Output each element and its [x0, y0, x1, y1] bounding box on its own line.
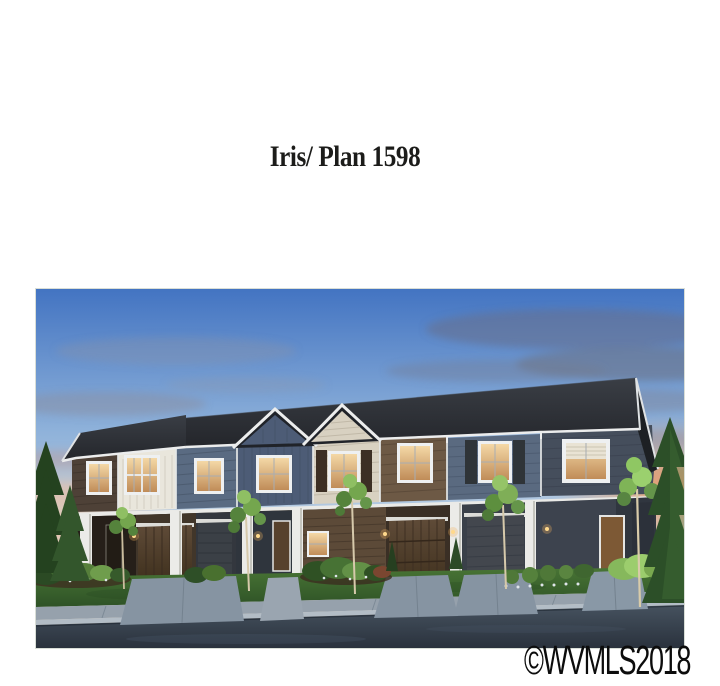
listing-photo	[36, 289, 684, 648]
window-brown-unit	[397, 443, 433, 483]
plan-title: Iris/ Plan 1598	[43, 140, 648, 175]
door-center	[273, 521, 290, 571]
townhome-rendering	[36, 289, 684, 648]
lower-window	[307, 531, 329, 557]
window-far-left	[86, 461, 112, 495]
listing-page: Iris/ Plan 1598	[0, 0, 720, 686]
window-slate-unit	[194, 458, 224, 494]
mls-watermark: ©WVMLS2018	[524, 640, 690, 681]
garage-door-wood-left	[136, 523, 194, 578]
window-gable-unit	[256, 455, 292, 493]
window-right-unit	[562, 439, 610, 483]
window-white-unit	[124, 455, 160, 495]
